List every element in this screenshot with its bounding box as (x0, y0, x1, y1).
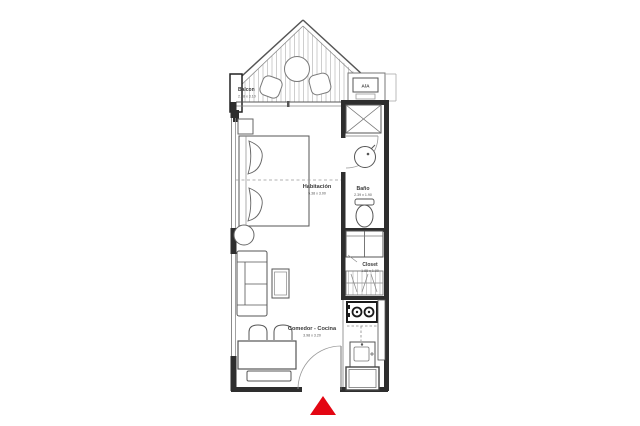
stove-burner-1-dot (356, 311, 358, 313)
balcony-table-icon (285, 57, 310, 82)
wall-closet-kitchen (341, 296, 388, 300)
wall-pier-left-bottom (231, 356, 237, 391)
bathroom-area: Baño 2.39 x 1.90 (346, 105, 381, 227)
bathroom-drain (367, 153, 370, 156)
bed-icon (239, 136, 309, 226)
stove-burner-2-dot (368, 311, 370, 313)
balcony-dims: 2.38 x 3.10 (238, 95, 256, 99)
entry-door-arc (298, 346, 341, 389)
wall-partition-closet (341, 232, 346, 296)
stove-knob-1 (347, 305, 350, 309)
floor-plan-drawing: A/A (0, 0, 640, 426)
balcony-label: Balcon (238, 87, 255, 93)
closet-area: Closet 1.85 x 1.00 (346, 231, 383, 295)
stool-icon (234, 225, 254, 245)
living-label: Comedor - Cocina (288, 326, 337, 332)
floor-plan-page: A/A (0, 0, 640, 426)
bathroom-dims: 2.39 x 1.90 (354, 193, 372, 197)
nightstand-icon (238, 119, 253, 134)
bedroom-label: Habitación (303, 184, 332, 190)
bedroom-area: Habitación 5.38 x 3.00 (234, 119, 341, 245)
wall-partition-mid (341, 172, 346, 232)
fridge-icon (346, 367, 379, 390)
bedroom-dims: 5.38 x 3.00 (308, 192, 326, 196)
balcony-door-stop (287, 101, 290, 107)
dining-chair-1-icon (249, 325, 267, 340)
living-dining-area: Comedor - Cocina 3.98 x 3.20 (237, 251, 337, 381)
closet-dims: 1.85 x 1.00 (361, 269, 379, 273)
kitchen-counter (378, 300, 385, 360)
balcony-labels: Balcon 2.38 x 3.10 (238, 87, 256, 99)
ac-unit-area: A/A (348, 73, 396, 103)
toilet-tank (355, 199, 374, 205)
entry-area (298, 346, 341, 415)
wall-top-right (345, 100, 388, 105)
bathroom-faucet (371, 145, 375, 149)
bathroom-sink-icon (355, 147, 376, 168)
wall-pier-left-top (231, 102, 237, 118)
bathroom-label: Baño (357, 186, 370, 192)
kitchen-sink-drain (361, 343, 363, 345)
dining-table-icon (238, 341, 296, 369)
wall-partition-top (341, 100, 346, 138)
stove-knob-2 (347, 313, 350, 317)
closet-label: Closet (362, 262, 378, 268)
living-dims: 3.98 x 3.20 (303, 334, 321, 338)
ac-label: A/A (361, 84, 370, 90)
kitchen-area (346, 300, 385, 390)
bench-icon (247, 371, 291, 381)
entrance-marker (310, 396, 336, 415)
toilet-icon (356, 205, 373, 227)
sofa-icon (237, 251, 267, 316)
wall-bottom-left (231, 387, 302, 392)
